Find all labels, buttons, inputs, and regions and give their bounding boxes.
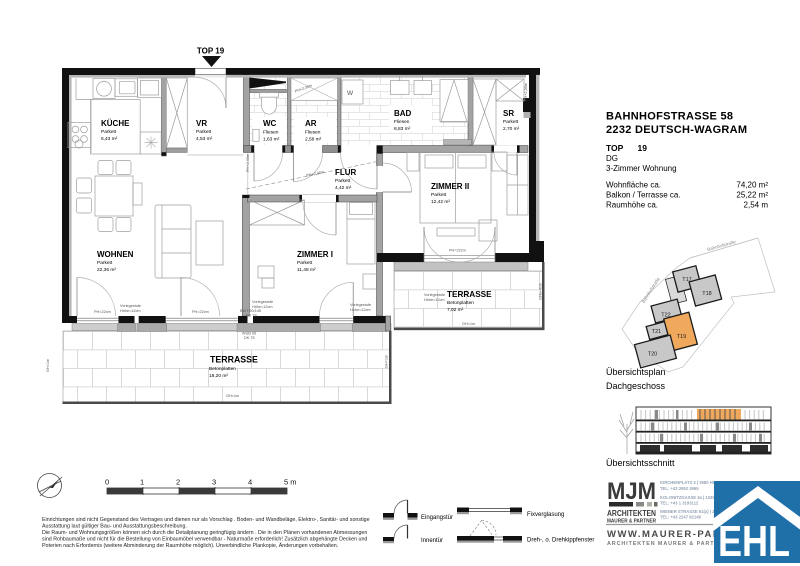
svg-text:Betonplatten: Betonplatten [209, 366, 236, 372]
svg-text:T22: T22 [661, 313, 670, 319]
svg-text:GH=1m: GH=1m [226, 394, 239, 398]
svg-text:Übersichtsschnitt: Übersichtsschnitt [606, 458, 675, 468]
svg-text:GH=1m: GH=1m [385, 355, 389, 368]
svg-text:sind Rohbaumaße und nicht für: sind Rohbaumaße und nicht für die Bestel… [42, 537, 367, 543]
svg-text:T18: T18 [702, 291, 711, 297]
svg-text:ZIMMER I: ZIMMER I [297, 250, 333, 259]
svg-text:4,53 m²: 4,53 m² [196, 136, 213, 142]
svg-text:2,54 m: 2,54 m [744, 201, 769, 210]
svg-text:Parkett: Parkett [101, 129, 117, 135]
svg-text:Vorlegestufe: Vorlegestufe [424, 293, 445, 297]
svg-text:Parkett: Parkett [431, 192, 447, 198]
svg-text:Vorlegestufe: Vorlegestufe [252, 300, 273, 304]
svg-text:WÜB 95: WÜB 95 [242, 332, 256, 336]
svg-text:W: W [347, 90, 354, 97]
svg-text:WC: WC [263, 119, 277, 128]
svg-text:Fliesen: Fliesen [305, 130, 321, 136]
svg-text:2,70 m²: 2,70 m² [503, 126, 520, 132]
svg-text:MAURER & PARTNER: MAURER & PARTNER [607, 519, 656, 525]
svg-text:Balkon / Terrasse ca.: Balkon / Terrasse ca. [606, 191, 681, 200]
svg-text:GFB+4cm: GFB+4cm [539, 283, 543, 300]
svg-text:12,42 m²: 12,42 m² [431, 199, 450, 205]
svg-text:Poterien nach Erfordernis (wei: Poterien nach Erfordernis (weitere Abmin… [42, 542, 338, 549]
svg-text:11,48 m²: 11,48 m² [297, 267, 316, 273]
svg-text:TERRASSE: TERRASSE [447, 290, 492, 299]
svg-text:2,58 m²: 2,58 m² [305, 137, 322, 143]
svg-text:Wohnfläche ca.: Wohnfläche ca. [606, 181, 661, 190]
svg-text:ARCHITEKTEN: ARCHITEKTEN [607, 509, 656, 518]
svg-text:GH=1m: GH=1m [46, 359, 50, 372]
svg-text:Fliesen: Fliesen [394, 119, 410, 125]
svg-text:Ausstattung laut gültiger Bau-: Ausstattung laut gültiger Bau- und Ausst… [42, 524, 187, 530]
svg-text:Höhe=12cm: Höhe=12cm [350, 308, 371, 312]
svg-text:Einrichtungen sind nicht Gegen: Einrichtungen sind nicht Gegenstand des … [42, 517, 370, 523]
svg-text:WOHNEN: WOHNEN [97, 250, 134, 259]
svg-text:PH+2,30m: PH+2,30m [524, 83, 528, 101]
svg-text:Fixverglasung: Fixverglasung [527, 512, 564, 518]
svg-text:Dreh-, o. Drehkippfenster: Dreh-, o. Drehkippfenster [527, 538, 594, 544]
svg-text:5,43 m²: 5,43 m² [101, 136, 118, 142]
svg-text:1,63 m²: 1,63 m² [263, 137, 280, 143]
svg-text:FLUR: FLUR [335, 168, 357, 177]
svg-text:KÜCHE: KÜCHE [101, 119, 130, 128]
svg-text:4,42 m²: 4,42 m² [335, 185, 352, 191]
svg-text:KIRCHENPLATZ 3 | 3580 HORN: KIRCHENPLATZ 3 | 3580 HORN [660, 480, 722, 485]
svg-text:2: 2 [176, 478, 180, 487]
svg-text:T20: T20 [648, 352, 657, 358]
svg-text:DG: DG [606, 154, 618, 163]
svg-text:SR: SR [503, 109, 514, 118]
svg-text:DK 75: DK 75 [244, 336, 255, 340]
svg-text:74,20 m²: 74,20 m² [736, 181, 768, 190]
svg-text:Parkett: Parkett [297, 260, 313, 266]
svg-text:DK 78: DK 78 [246, 314, 257, 318]
svg-text:2232 DEUTSCH-WAGRAM: 2232 DEUTSCH-WAGRAM [606, 124, 747, 136]
svg-text:25,22 m²: 25,22 m² [736, 191, 768, 200]
svg-text:Vorlegestufe: Vorlegestufe [350, 303, 371, 307]
svg-text:TEL: +43 1 3193112: TEL: +43 1 3193112 [660, 501, 699, 506]
svg-text:Parkett: Parkett [335, 178, 351, 184]
svg-text:22,36 m²: 22,36 m² [97, 267, 116, 273]
svg-text:TERRASSE: TERRASSE [210, 355, 258, 365]
svg-text:Höhe=12cm: Höhe=12cm [120, 309, 141, 313]
svg-text:Innentür: Innentür [421, 538, 443, 544]
svg-text:Übersichtsplan: Übersichtsplan [606, 367, 666, 377]
svg-text:EHL: EHL [718, 517, 790, 566]
svg-text:3-Zimmer Wohnung: 3-Zimmer Wohnung [606, 164, 677, 173]
svg-text:MJM: MJM [607, 478, 656, 505]
svg-text:TOP 19: TOP 19 [197, 47, 225, 56]
svg-text:BAHNHOFSTRASSE 58: BAHNHOFSTRASSE 58 [606, 111, 733, 123]
svg-text:PH=22cm: PH=22cm [449, 249, 466, 253]
svg-text:Fliesen: Fliesen [263, 130, 279, 136]
svg-text:TOP 19: TOP 19 [606, 143, 647, 153]
svg-text:Parkett: Parkett [503, 119, 519, 125]
svg-text:8,83 m²: 8,83 m² [394, 126, 411, 132]
svg-text:Eingangstür: Eingangstür [421, 515, 453, 521]
svg-text:Höhe=12cm: Höhe=12cm [424, 298, 445, 302]
svg-text:AR: AR [305, 119, 317, 128]
svg-text:T21: T21 [652, 329, 661, 335]
svg-text:3: 3 [212, 478, 216, 487]
svg-text:Die Raum- und Wohnungsgrößen k: Die Raum- und Wohnungsgrößen können sich… [42, 530, 367, 536]
svg-text:GH=1m: GH=1m [462, 322, 475, 326]
svg-text:Parkett: Parkett [97, 260, 113, 266]
svg-text:18,20 m²: 18,20 m² [209, 373, 228, 379]
svg-text:5 m: 5 m [284, 478, 297, 487]
svg-text:BAD: BAD [394, 109, 412, 118]
svg-text:7,02 m²: 7,02 m² [447, 307, 464, 313]
svg-text:Vorlegestufe: Vorlegestufe [120, 304, 141, 308]
svg-text:Dachgeschoss: Dachgeschoss [606, 381, 666, 391]
svg-text:Betonplatten: Betonplatten [447, 300, 474, 306]
svg-text:VR: VR [196, 119, 207, 128]
svg-text:T19: T19 [677, 334, 686, 340]
svg-text:PH+2,40m: PH+2,40m [246, 154, 250, 172]
svg-text:ZIMMER II: ZIMMER II [431, 182, 469, 191]
svg-text:T17: T17 [682, 277, 691, 283]
svg-text:0: 0 [105, 478, 109, 487]
svg-text:BWT 90/145: BWT 90/145 [240, 309, 261, 313]
svg-text:Raumhöhe ca.: Raumhöhe ca. [606, 201, 658, 210]
svg-text:TEL: +43 2992 3965: TEL: +43 2992 3965 [660, 486, 699, 491]
svg-text:1: 1 [140, 478, 144, 487]
svg-text:TEL: +43 2247 62148: TEL: +43 2247 62148 [660, 515, 702, 520]
svg-text:4: 4 [248, 478, 252, 487]
svg-text:PH=22cm: PH=22cm [192, 310, 209, 314]
svg-text:Parkett: Parkett [196, 129, 212, 135]
svg-text:PH=22cm: PH=22cm [94, 310, 111, 314]
